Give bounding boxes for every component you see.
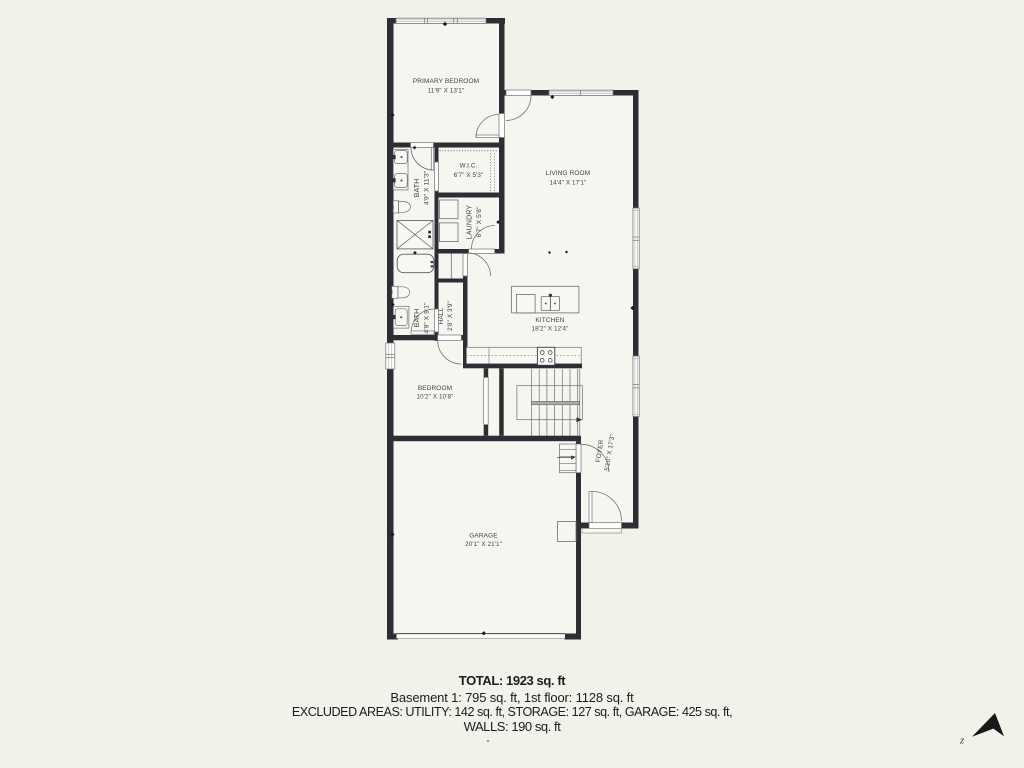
svg-text:LAUNDRY: LAUNDRY bbox=[467, 205, 474, 240]
svg-text:KITCHEN: KITCHEN bbox=[535, 317, 564, 324]
svg-text:LIVING ROOM: LIVING ROOM bbox=[546, 170, 590, 177]
svg-text:4'9" X 9'1": 4'9" X 9'1" bbox=[424, 302, 431, 334]
svg-text:BATH: BATH bbox=[414, 309, 421, 328]
svg-text:6'7" X 5'8": 6'7" X 5'8" bbox=[476, 206, 483, 238]
svg-text:20'1" X 21'1": 20'1" X 21'1" bbox=[465, 541, 502, 548]
svg-text:PRIMARY BEDROOM: PRIMARY BEDROOM bbox=[413, 78, 479, 85]
svg-text:6'7" X 5'3": 6'7" X 5'3" bbox=[454, 172, 484, 179]
svg-text:W.I.C.: W.I.C. bbox=[460, 163, 478, 170]
svg-text:HALL: HALL bbox=[438, 307, 445, 324]
svg-text:10'2" X 10'8": 10'2" X 10'8" bbox=[417, 393, 454, 400]
svg-text:z: z bbox=[959, 735, 965, 747]
svg-text:GARAGE: GARAGE bbox=[469, 533, 498, 540]
svg-text:4'9" X 11'3": 4'9" X 11'3" bbox=[423, 170, 430, 205]
svg-text:14'4" X 17'1": 14'4" X 17'1" bbox=[550, 180, 587, 187]
svg-text:2'8" X 3'9": 2'8" X 3'9" bbox=[447, 301, 454, 331]
svg-text:BATH: BATH bbox=[414, 179, 421, 198]
svg-text:11'9" X 13'1": 11'9" X 13'1" bbox=[428, 87, 464, 94]
svg-text:BEDROOM: BEDROOM bbox=[418, 385, 452, 392]
svg-text:18'2" X 12'4": 18'2" X 12'4" bbox=[532, 326, 569, 333]
